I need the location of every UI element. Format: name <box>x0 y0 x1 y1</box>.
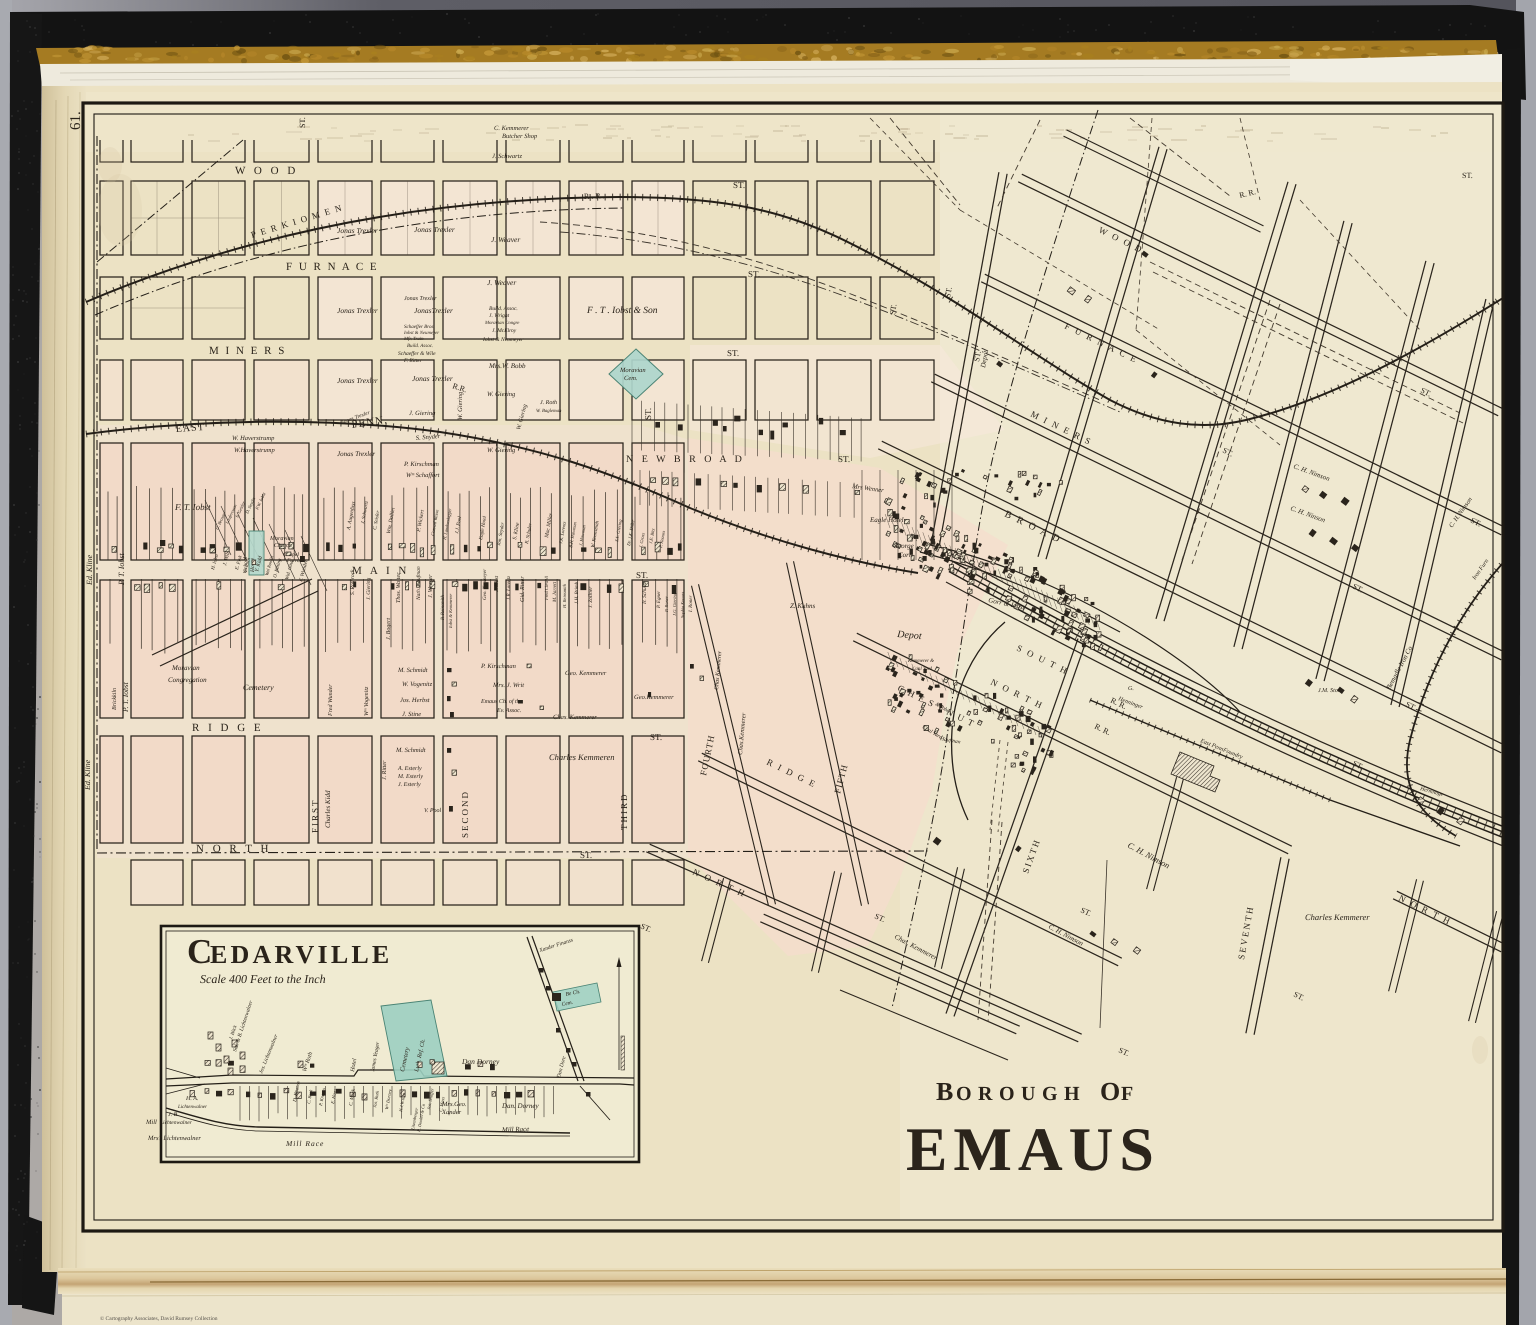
svg-text:M I N E R S: M I N E R S <box>209 345 286 357</box>
svg-text:ST.: ST. <box>838 454 850 464</box>
svg-text:Dan. Dorney: Dan. Dorney <box>501 1102 539 1110</box>
svg-text:P. Kirschman: P. Kirschman <box>403 461 439 468</box>
svg-text:Build. Assoc.: Build. Assoc. <box>489 306 518 312</box>
svg-text:Iobst & Neumeyer: Iobst & Neumeyer <box>482 337 524 343</box>
svg-text:Wᵐ Schaffort: Wᵐ Schaffort <box>406 472 440 479</box>
svg-text:ST.: ST. <box>733 180 745 190</box>
svg-text:EDARVILLE: EDARVILLE <box>210 940 392 969</box>
svg-text:W. Giering: W. Giering <box>457 391 464 420</box>
svg-text:M. Esterly: M. Esterly <box>397 773 423 780</box>
svg-text:Schaeffer Bros: Schaeffer Bros <box>404 324 433 330</box>
svg-text:JonasTrexler: JonasTrexler <box>414 306 453 315</box>
svg-text:Geo. Neumeyer: Geo. Neumeyer <box>482 569 488 600</box>
svg-text:P. Roner: P. Roner <box>664 596 669 613</box>
svg-text:Fred Clewell: Fred Clewell <box>544 575 549 601</box>
svg-text:Jonas Trexler: Jonas Trexler <box>414 225 455 234</box>
svg-text:FIRST: FIRST <box>310 798 320 833</box>
svg-text:C. Kemmerer: C. Kemmerer <box>494 125 529 132</box>
svg-text:ST.: ST. <box>748 269 760 279</box>
svg-text:THIRD: THIRD <box>619 793 629 831</box>
svg-text:J. Giering: J. Giering <box>366 577 372 600</box>
svg-text:J. Schwartz: J. Schwartz <box>492 153 522 160</box>
svg-text:Gid. Ritter: Gid. Ritter <box>519 576 526 602</box>
svg-text:Schaeffer & Wile: Schaeffer & Wile <box>398 351 436 357</box>
svg-text:V. Pool: V. Pool <box>424 807 442 814</box>
svg-text:W. Bagleman: W. Bagleman <box>536 408 562 414</box>
svg-text:Jos. Herbst: Jos. Herbst <box>400 697 430 704</box>
svg-text:Dan Dorney: Dan Dorney <box>461 1057 500 1066</box>
svg-text:Mrs.Geo.: Mrs.Geo. <box>441 1101 467 1108</box>
svg-text:J. Ritter: J. Ritter <box>382 760 388 780</box>
svg-text:Eagle Hotel: Eagle Hotel <box>869 516 904 524</box>
svg-text:Thos. Walter: Thos. Walter <box>395 572 402 603</box>
svg-text:Geo. Kemmerer: Geo. Kemmerer <box>565 670 607 677</box>
svg-text:Church: Church <box>274 542 292 549</box>
svg-text:ST.: ST. <box>727 348 739 358</box>
svg-text:J. Iobst: J. Iobst <box>494 575 500 592</box>
svg-text:J. McElroy: J. McElroy <box>492 328 517 334</box>
svg-text:Wᵐ Vogenitz: Wᵐ Vogenitz <box>364 686 370 716</box>
svg-text:F: F <box>1121 1083 1133 1105</box>
svg-text:F U R N A C E: F U R N A C E <box>286 261 379 273</box>
svg-text:Fred Wunder: Fred Wunder <box>327 684 334 717</box>
svg-text:C: C <box>187 932 212 971</box>
svg-text:Mill Race: Mill Race <box>501 1125 530 1134</box>
svg-text:G.: G. <box>1128 686 1134 692</box>
svg-text:S. Rothrock: S. Rothrock <box>350 569 356 595</box>
svg-text:Mfr. Train: Mfr. Train <box>403 336 424 342</box>
svg-text:Cemetery: Cemetery <box>243 683 274 692</box>
svg-text:Depot: Depot <box>896 629 923 642</box>
svg-text:61.: 61. <box>68 111 84 130</box>
svg-text:M. Schmidt: M. Schmidt <box>395 747 426 754</box>
svg-text:J. Weaver: J. Weaver <box>487 278 516 287</box>
svg-text:W. Giering: W. Giering <box>487 391 516 398</box>
svg-text:P. Egner: P. Egner <box>656 591 662 609</box>
svg-text:R I D G E: R I D G E <box>192 722 264 734</box>
svg-text:Charles Kemmerer: Charles Kemmerer <box>1305 912 1370 922</box>
svg-text:EMAUS: EMAUS <box>906 1116 1160 1184</box>
svg-text:Ev. Assoc.: Ev. Assoc. <box>496 708 521 714</box>
svg-text:Moravian: Moravian <box>171 664 200 672</box>
svg-text:A. Esterly: A. Esterly <box>397 765 422 772</box>
svg-text:Z. Kuhns: Z. Kuhns <box>790 602 816 610</box>
svg-text:Moravian: Moravian <box>269 536 294 542</box>
svg-text:B: B <box>936 1077 953 1106</box>
svg-text:W. Vogenitz: W. Vogenitz <box>402 681 433 688</box>
svg-text:Congregation: Congregation <box>168 676 207 684</box>
svg-text:Build. Assoc.: Build. Assoc. <box>407 343 433 349</box>
svg-text:J. Roth: J. Roth <box>540 399 557 406</box>
svg-text:ST.: ST. <box>643 408 653 420</box>
svg-text:M. Schmidt: M. Schmidt <box>397 667 428 674</box>
svg-text:ST.: ST. <box>1462 171 1473 180</box>
svg-text:N E W B R O A D: N E W B R O A D <box>626 454 745 465</box>
svg-text:George: George <box>893 542 914 550</box>
svg-text:ST.: ST. <box>298 117 307 128</box>
svg-text:Charles Kemmeren: Charles Kemmeren <box>549 752 615 762</box>
svg-text:J. Wright: J. Wright <box>489 313 510 319</box>
svg-text:Corr: Corr <box>898 551 912 559</box>
svg-text:J.R. Lorentz: J.R. Lorentz <box>506 576 512 600</box>
svg-text:ST.: ST. <box>888 303 898 315</box>
svg-text:Moravian: Moravian <box>619 367 646 374</box>
svg-text:J. Zollner: J. Zollner <box>588 586 594 608</box>
svg-text:OROUGH: OROUGH <box>956 1083 1086 1105</box>
svg-text:Brickkiln: Brickkiln <box>111 688 118 710</box>
svg-text:Iobst & Neumeyer: Iobst & Neumeyer <box>403 330 439 336</box>
svg-text:ST.: ST. <box>636 570 648 580</box>
svg-text:Kemmerer &: Kemmerer & <box>907 658 934 664</box>
svg-text:Xander: Xander <box>441 1109 462 1116</box>
svg-text:Cem.: Cem. <box>624 375 638 382</box>
svg-text:Mrs.W. Bobb: Mrs.W. Bobb <box>488 362 526 370</box>
svg-text:Mrs? Lichtenwalner: Mrs? Lichtenwalner <box>147 1135 201 1142</box>
svg-text:Coal Yard: Coal Yard <box>912 666 933 672</box>
svg-text:F. T. Iobst: F. T. Iobst <box>174 502 211 512</box>
svg-text:J. Weaver: J. Weaver <box>428 574 434 598</box>
svg-text:I. Roner: I. Roner <box>688 596 694 613</box>
svg-text:J.G. Giering: J.G. Giering <box>672 592 677 616</box>
svg-text:F . T . Iobst & Son: F . T . Iobst & Son <box>586 306 658 316</box>
svg-text:Ir. Schultz: Ir. Schultz <box>642 581 648 605</box>
svg-text:ST.: ST. <box>943 286 954 298</box>
svg-text:P. Reinsmith: P. Reinsmith <box>440 595 446 621</box>
svg-text:J. Weaver: J. Weaver <box>491 235 520 244</box>
svg-text:Sophia Knauss: Sophia Knauss <box>680 591 685 618</box>
svg-text:W. Haverstrump: W. Haverstrump <box>232 435 275 442</box>
svg-text:Iobst & Kemmerer: Iobst & Kemmerer <box>448 594 453 629</box>
svg-text:P. T. Iobst: P. T. Iobst <box>117 553 126 586</box>
svg-text:Nath. Kaufman: Nath. Kaufman <box>416 566 422 601</box>
svg-text:Moravian Congre: Moravian Congre <box>484 320 520 326</box>
svg-text:W. Giering: W. Giering <box>487 447 516 454</box>
svg-text:J. Esterly: J. Esterly <box>398 781 421 788</box>
svg-text:P. Kirschman: P. Kirschman <box>480 663 516 670</box>
svg-text:P. T. Iobst: P. T. Iobst <box>121 681 130 713</box>
svg-text:Butcher Shop: Butcher Shop <box>502 133 538 140</box>
svg-text:Jonas Trexler: Jonas Trexler <box>412 374 453 383</box>
svg-text:Charles Kidd: Charles Kidd <box>324 790 332 828</box>
svg-text:Mill Race: Mill Race <box>285 1139 324 1148</box>
svg-text:J. Stine: J. Stine <box>402 711 421 718</box>
svg-text:J.H. Brimb: J.H. Brimb <box>574 581 580 604</box>
svg-text:Lichtenwalner: Lichtenwalner <box>159 1120 193 1126</box>
svg-text:ST.: ST. <box>650 732 662 742</box>
svg-text:O: O <box>1100 1077 1120 1106</box>
svg-text:Jonas Trexler: Jonas Trexler <box>337 226 378 235</box>
svg-text:J. B.: J. B. <box>168 1112 179 1118</box>
svg-text:J. Bogert: J. Bogert <box>386 618 392 640</box>
svg-text:H. Reinsmith: H. Reinsmith <box>562 583 567 609</box>
svg-text:Mill: Mill <box>145 1119 157 1126</box>
svg-text:Emaus Ch. of the: Emaus Ch. of the <box>480 698 523 705</box>
svg-text:Jonas Trexler: Jonas Trexler <box>337 306 378 315</box>
svg-text:Mrs. J. Writ: Mrs. J. Writ <box>492 682 524 689</box>
svg-text:Jonas Trexler: Jonas Trexler <box>404 295 437 302</box>
svg-text:Chas. Kemmerer: Chas. Kemmerer <box>553 714 597 721</box>
svg-text:W O O D: W O O D <box>235 165 298 177</box>
svg-text:W.Haverstrump: W.Haverstrump <box>234 447 275 454</box>
svg-text:© Cartography Associates, Davi: © Cartography Associates, David Rumsey C… <box>100 1316 218 1322</box>
svg-text:Geo.Kemmerer: Geo.Kemmerer <box>634 694 674 701</box>
svg-text:F. Ritter: F. Ritter <box>403 358 423 364</box>
svg-text:SECOND: SECOND <box>460 790 470 838</box>
svg-text:Scale 400 Feet to the Inch: Scale 400 Feet to the Inch <box>200 972 326 986</box>
svg-text:Ed. Kline: Ed. Kline <box>85 554 94 586</box>
svg-text:M. Jarrett: M. Jarrett <box>552 581 558 603</box>
svg-text:Jonas Trexler: Jonas Trexler <box>337 376 378 385</box>
svg-text:H. A.: H. A. <box>185 1096 198 1102</box>
svg-text:J. Giering: J. Giering <box>409 410 436 417</box>
svg-text:Lichtenwalner: Lichtenwalner <box>177 1104 207 1110</box>
svg-text:R . R .: R . R . <box>584 191 605 201</box>
svg-text:Jonas Trexler: Jonas Trexler <box>337 450 375 458</box>
